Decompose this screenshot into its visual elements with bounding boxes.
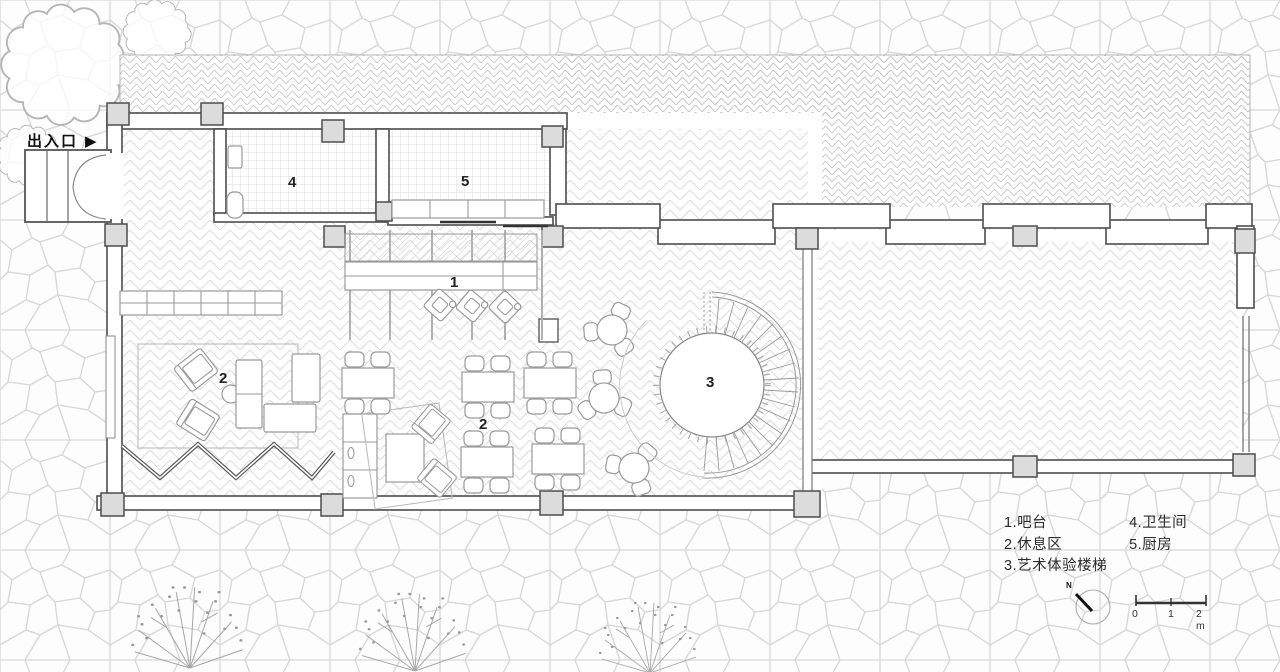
north-label: N (1066, 581, 1072, 590)
kitchen-counter (392, 200, 544, 218)
scale-tick-2: 2 m (1196, 608, 1205, 632)
room-label-bar: 1 (450, 274, 458, 292)
bar-counter (345, 262, 537, 290)
south-wall-west-wing (97, 496, 819, 510)
scale-tick-0: 0 (1132, 608, 1138, 620)
scale-tick-1: 1 (1168, 608, 1174, 620)
coffee-table (386, 434, 424, 482)
entrance-label: 出入口 ▶ (27, 130, 97, 151)
legend: 1.吧台 2.休息区 3.艺术体验楼梯 4.卫生间 5.厨房 (1004, 513, 1187, 578)
room-label-art-stair: 3 (706, 374, 714, 392)
entrance-arrow-icon: ▶ (85, 132, 97, 150)
legend-column-1: 1.吧台 2.休息区 3.艺术体验楼梯 (1004, 513, 1107, 578)
room-label-lounge-center: 2 (479, 416, 487, 434)
door-opening (106, 153, 124, 219)
back-bar (345, 234, 537, 261)
legend-item-restroom: 4.卫生间 (1129, 513, 1187, 535)
legend-item-kitchen: 5.厨房 (1129, 535, 1187, 557)
legend-column-2: 4.卫生间 5.厨房 (1129, 513, 1187, 578)
legend-item-bar: 1.吧台 (1004, 513, 1107, 535)
right-hall-floor (812, 230, 1242, 462)
room-label-kitchen: 5 (461, 173, 469, 191)
bookshelf (120, 291, 282, 315)
legend-item-lounge: 2.休息区 (1004, 535, 1107, 557)
floor-plan-page: 出入口 ▶ 1 2 2 3 4 5 1.吧台 2.休息区 3.艺术体验楼梯 4.… (0, 0, 1280, 672)
glass-partition (803, 244, 812, 496)
west-window (106, 336, 115, 438)
restroom-west-wall (214, 129, 226, 215)
entrance-text: 出入口 (27, 130, 78, 151)
room-label-restroom: 4 (288, 174, 296, 192)
legend-item-stair: 3.艺术体验楼梯 (1004, 556, 1107, 578)
room-label-lounge-west: 2 (219, 370, 227, 388)
entrance-vestibule (25, 150, 124, 222)
